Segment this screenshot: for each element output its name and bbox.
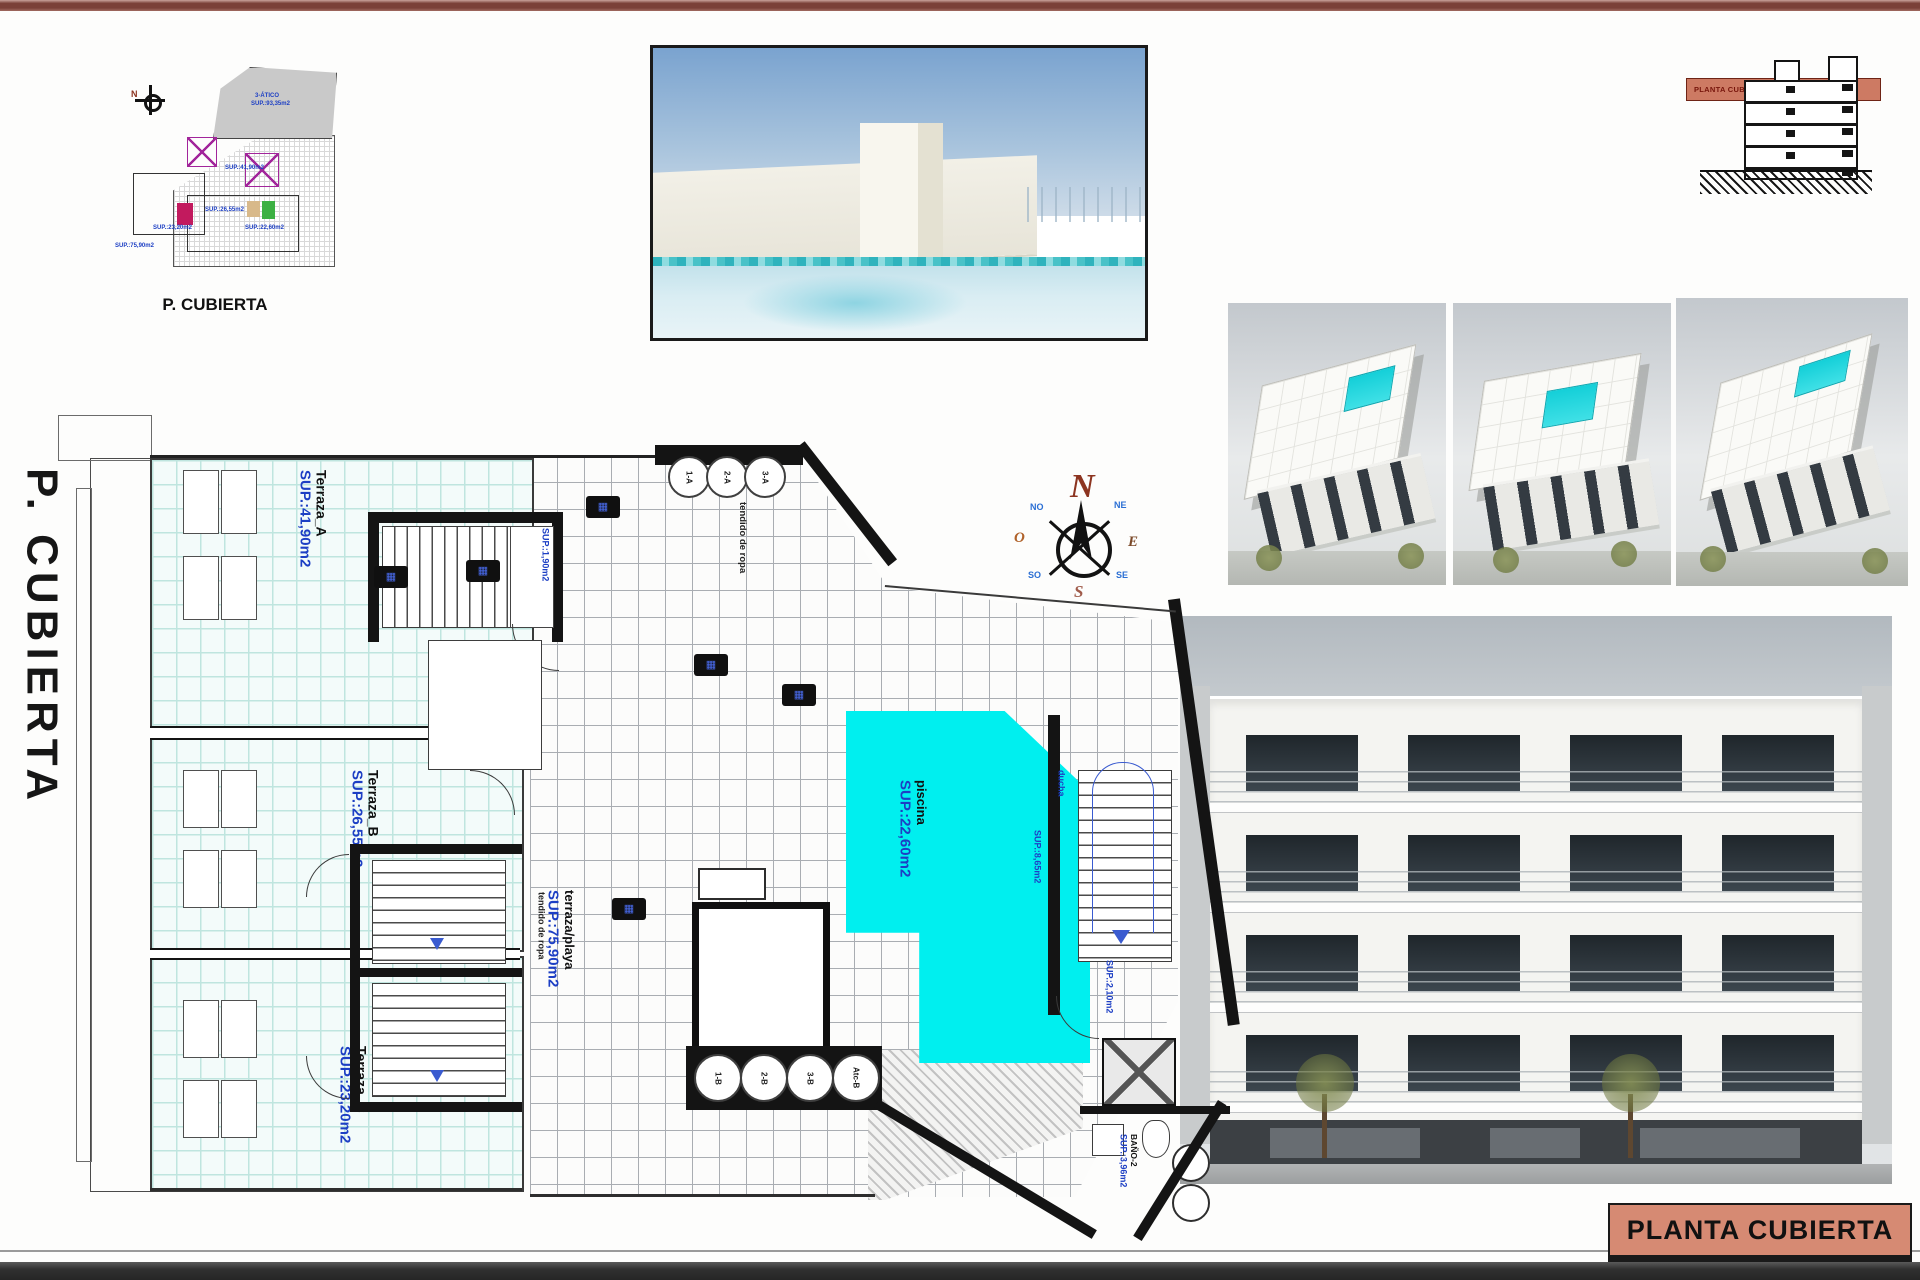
lounger — [183, 470, 219, 534]
vestibule — [428, 640, 542, 770]
facade-sidewalk — [1180, 1164, 1892, 1184]
section-ground-hatch — [1700, 170, 1872, 194]
laundry-left-label: tendido de ropa — [536, 892, 546, 960]
lift-shaft — [1102, 1038, 1176, 1106]
skylight-square-big — [692, 902, 830, 1062]
bottom-accent-bar — [0, 1262, 1920, 1280]
compass-n: N — [1070, 468, 1095, 506]
section-building — [1744, 80, 1858, 180]
facade-render — [1180, 616, 1892, 1184]
render-railing — [1027, 187, 1145, 222]
skylight-2a: 2-A — [706, 456, 748, 498]
lounger — [183, 1080, 219, 1138]
skylight-1a: 1-A — [668, 456, 710, 498]
awning-outline-outer — [90, 458, 152, 1192]
render-waterline — [653, 257, 1145, 266]
stair-a-sup: SUP.:1,90m2 — [540, 528, 550, 581]
render-parapet-wall — [653, 155, 1037, 271]
compass-se: SE — [1116, 570, 1128, 580]
stair-right-sup: SUP.:2,10m2 — [1104, 960, 1114, 1013]
lounger — [221, 556, 257, 620]
skylight-ab: Atc-B — [832, 1054, 880, 1102]
aerial-2-pool — [1542, 382, 1598, 429]
plan-top-edge — [150, 455, 670, 458]
deck-sup-label: SUP.:8,65m2 — [1032, 830, 1042, 883]
section-thumbnail: PLANTA CUBIERTA — [1682, 38, 1882, 193]
lounger — [221, 770, 257, 828]
skylight-3a: 3-A — [744, 456, 786, 498]
aerial-render-1 — [1228, 303, 1446, 585]
sheet-title: PLANTA CUBIERTA — [1627, 1215, 1893, 1246]
top-accent-bar — [0, 0, 1920, 11]
key-unit-b-color — [247, 201, 260, 217]
section-window-column-1 — [1786, 86, 1795, 174]
bath-label: BAÑO-2 SUP.:3,96m2 — [1118, 1134, 1138, 1187]
stair-right-guideline — [1092, 762, 1154, 933]
roof-unit-box: ▦ — [466, 560, 500, 582]
compass-e: E — [1128, 534, 1138, 551]
skylight-square-small — [698, 868, 766, 900]
bath-toilet — [1142, 1120, 1170, 1158]
render-water-glow — [742, 274, 968, 332]
lounger — [221, 850, 257, 908]
facade-tree-2 — [1602, 1054, 1660, 1112]
lounger — [183, 850, 219, 908]
laundry-top-label: tendido de ropa — [736, 502, 747, 573]
bath-boiler-2 — [1172, 1184, 1210, 1222]
stair-a-wall-top — [368, 512, 563, 523]
sheet-title-banner: PLANTA CUBIERTA — [1608, 1203, 1912, 1257]
compass-ne: NE — [1114, 500, 1127, 510]
compass-sw: SO — [1028, 570, 1041, 580]
compass-nw: NO — [1030, 502, 1044, 512]
roof-unit-box: ▦ — [612, 898, 646, 920]
mini-compass-icon: N — [133, 83, 167, 117]
awning-outline-inner — [76, 488, 92, 1162]
render-stair-cube — [860, 123, 944, 262]
skylight-1b: 1-B — [694, 1054, 742, 1102]
lounger — [221, 1000, 257, 1058]
aerial-3-pool — [1794, 350, 1851, 398]
lounger — [221, 1080, 257, 1138]
aerial-2-ground — [1453, 551, 1671, 585]
stair-bc-wall-bot — [350, 1102, 522, 1112]
skylight-2b: 2-B — [740, 1054, 788, 1102]
pool-label: piscina SUP.:22,60m2 — [896, 780, 928, 877]
facade-floor-3 — [1210, 825, 1862, 903]
facade-floor-4 — [1210, 725, 1862, 803]
aerial-render-3 — [1676, 298, 1908, 586]
stair-c-arrow — [430, 1070, 444, 1082]
aerial-render-2 — [1453, 303, 1671, 585]
stair-bc-wall-mid — [350, 968, 522, 977]
key-unit-a-color — [177, 203, 193, 225]
roof-unit-box: ▦ — [782, 684, 816, 706]
beach-label: terraza/playa SUP.:75,90m2 — [544, 890, 576, 987]
facade-tree-1 — [1296, 1054, 1354, 1112]
facade-ground-floor — [1210, 1120, 1862, 1164]
shower-label: ducha — [1056, 770, 1066, 797]
awning-step-top — [58, 415, 152, 461]
facade-neighbor-right — [1862, 686, 1892, 1144]
pool-render — [650, 45, 1148, 341]
facade-floor-2 — [1210, 925, 1862, 1003]
aerial-1-pool — [1344, 365, 1396, 412]
key-atico-sup: SUP.:93,35m2 — [251, 101, 290, 108]
roof-unit-box: ▦ — [694, 654, 728, 676]
terrace-a-label: Terraza_A SUP.:41,90m2 — [296, 470, 329, 567]
roof-unit-box: ▦ — [374, 566, 408, 588]
plan-vertical-title: P. CUBIERTA — [16, 468, 67, 806]
lounger — [183, 1000, 219, 1058]
lounger — [183, 770, 219, 828]
key-site-plan: N 3-ÁTICO SUP.:93,35m2 SUP.:41,90m2 SUP.… — [95, 45, 335, 335]
bath-wall-top — [1080, 1106, 1230, 1114]
compass-rose: N S E O NE NO SE SO — [1012, 478, 1152, 618]
mini-compass-n: N — [131, 89, 138, 99]
section-window-column-2 — [1842, 84, 1853, 176]
terrace-c-bottom-line — [150, 1188, 522, 1191]
beach-bottom-line — [530, 1194, 875, 1197]
stair-bc-wall-left — [350, 844, 360, 1112]
compass-s: S — [1074, 582, 1083, 602]
right-wall-outer — [1168, 598, 1240, 1025]
lounger — [221, 470, 257, 534]
compass-o: O — [1014, 530, 1025, 547]
key-xbox-2 — [187, 137, 217, 167]
stair-b-arrow — [430, 938, 444, 950]
lounger — [183, 556, 219, 620]
roof-unit-box: ▦ — [586, 496, 620, 518]
roof-floor-plan: P. CUBIERTA Terraza_A SUP.:41,90m2 Terra… — [0, 440, 1250, 1260]
key-plan-caption: P. CUBIERTA — [95, 295, 335, 315]
skylight-3b: 3-B — [786, 1054, 834, 1102]
right-wall-inner — [1048, 715, 1060, 1015]
stair-right-arrow — [1112, 930, 1130, 944]
key-atico-name: 3-ÁTICO — [255, 93, 279, 100]
key-unit-c-color — [262, 201, 275, 219]
stair-bc-wall-top — [350, 844, 522, 854]
